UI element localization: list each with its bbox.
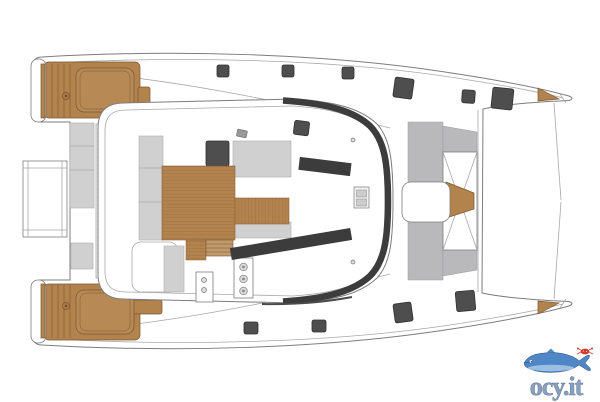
deck-hatch: [217, 65, 229, 77]
flybridge-bench-forward: [233, 141, 291, 177]
aft-bench-cushions: [70, 123, 94, 269]
throttle-console: [196, 272, 213, 302]
crab-icon: [577, 348, 593, 355]
teak-landing: [186, 240, 206, 260]
deck-hatch: [462, 90, 476, 104]
deck-hatch: [342, 67, 354, 79]
flybridge-bench-mid: [233, 222, 291, 238]
flybridge-teak-arm: [235, 198, 289, 224]
aft-platform-frame: [23, 161, 67, 237]
forward-lounge-seat: [402, 182, 450, 222]
forward-cockpit: [402, 122, 477, 280]
forestay-bridle-line: [554, 103, 561, 299]
companionway-steps: [206, 240, 233, 256]
logo-text: ocy.it: [530, 372, 584, 401]
deck-hatch: [244, 322, 258, 334]
deck-plan-canvas: ocy.it: [0, 0, 600, 402]
mast-base: [354, 187, 369, 208]
deck-hatch: [393, 77, 415, 99]
logo: ocy.it: [524, 348, 593, 402]
flybridge-teak-floor: [162, 166, 235, 240]
helm-console: [234, 258, 253, 298]
deck-hatch: [312, 320, 326, 332]
coachroof-hatch: [293, 120, 310, 136]
catamaran-deck-plan: ocy.it: [0, 0, 600, 402]
deck-hatch: [393, 302, 413, 323]
deck-hatch: [491, 87, 514, 110]
flybridge: [98, 99, 393, 304]
deck-hatch: [455, 290, 476, 312]
deck-hatch: [282, 65, 294, 77]
anchor-roller-line: [560, 94, 566, 308]
flybridge-bench-left: [139, 136, 163, 240]
flybridge-table: [206, 141, 229, 166]
